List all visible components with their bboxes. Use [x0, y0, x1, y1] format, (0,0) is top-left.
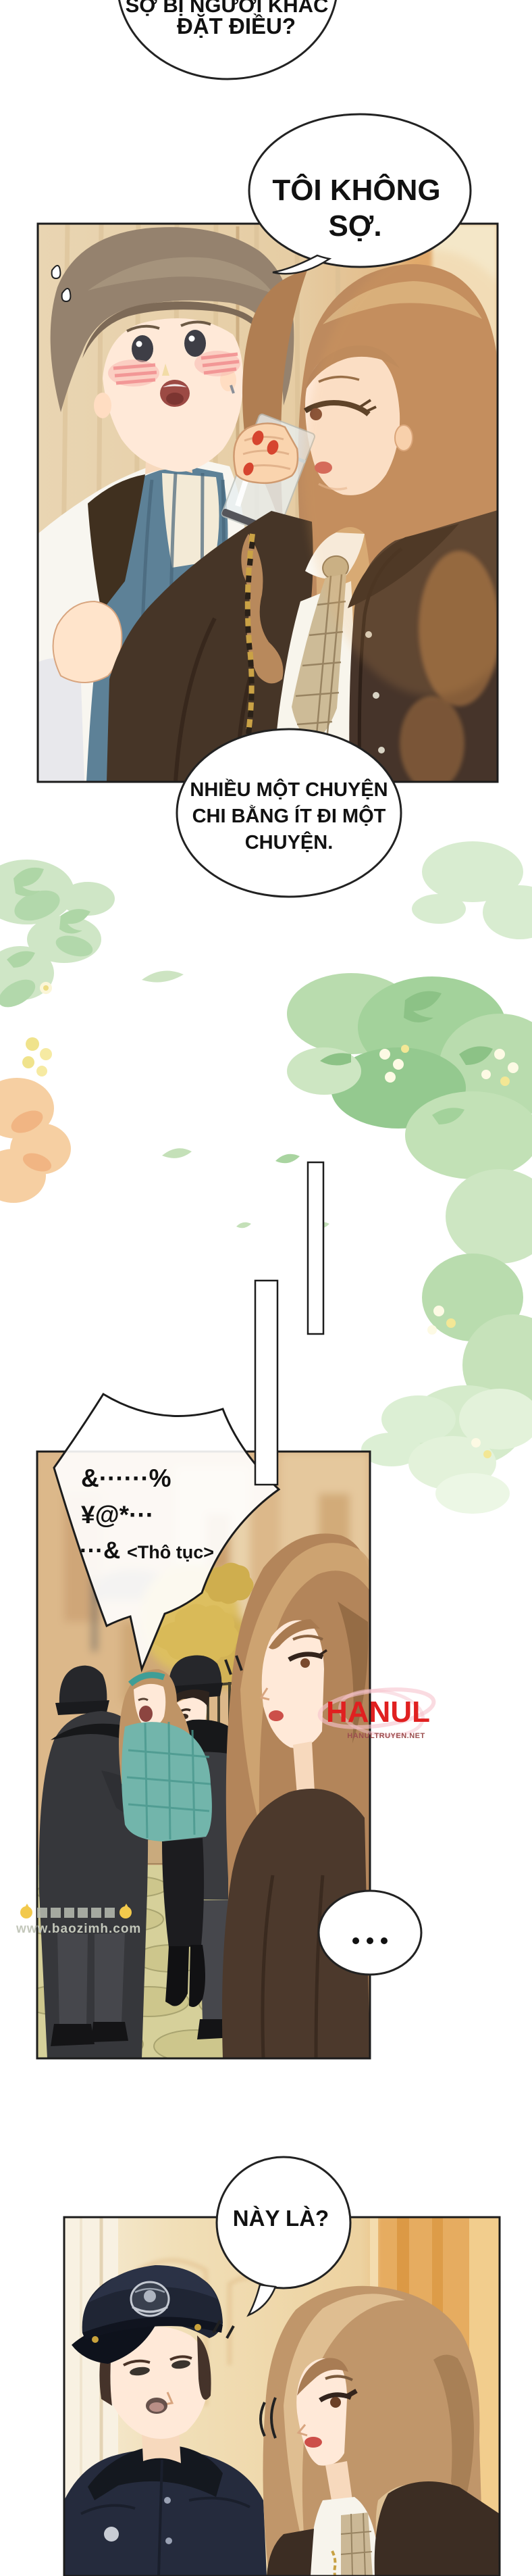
svg-text:TÔI KHÔNG: TÔI KHÔNG	[272, 172, 440, 207]
svg-text:CHUYỆN.: CHUYỆN.	[245, 831, 334, 853]
svg-text:&······%: &······%	[81, 1464, 171, 1492]
svg-text:HANUL: HANUL	[326, 1695, 430, 1729]
svg-text:CHI BẰNG ÍT ĐI MỘT: CHI BẰNG ÍT ĐI MỘT	[192, 804, 386, 827]
svg-text:NÀY LÀ?: NÀY LÀ?	[233, 2206, 329, 2231]
svg-text:¥@*···: ¥@*···	[81, 1501, 154, 1529]
svg-text:NHIỀU MỘT CHUYỆN: NHIỀU MỘT CHUYỆN	[190, 778, 388, 801]
svg-text:www.baozimh.com: www.baozimh.com	[16, 1922, 141, 1936]
svg-text:ĐẶT ĐIỀU?: ĐẶT ĐIỀU?	[177, 14, 296, 39]
svg-text:HANULTRUYEN.NET: HANULTRUYEN.NET	[347, 1732, 425, 1740]
svg-text:SỢ.: SỢ.	[328, 209, 381, 243]
